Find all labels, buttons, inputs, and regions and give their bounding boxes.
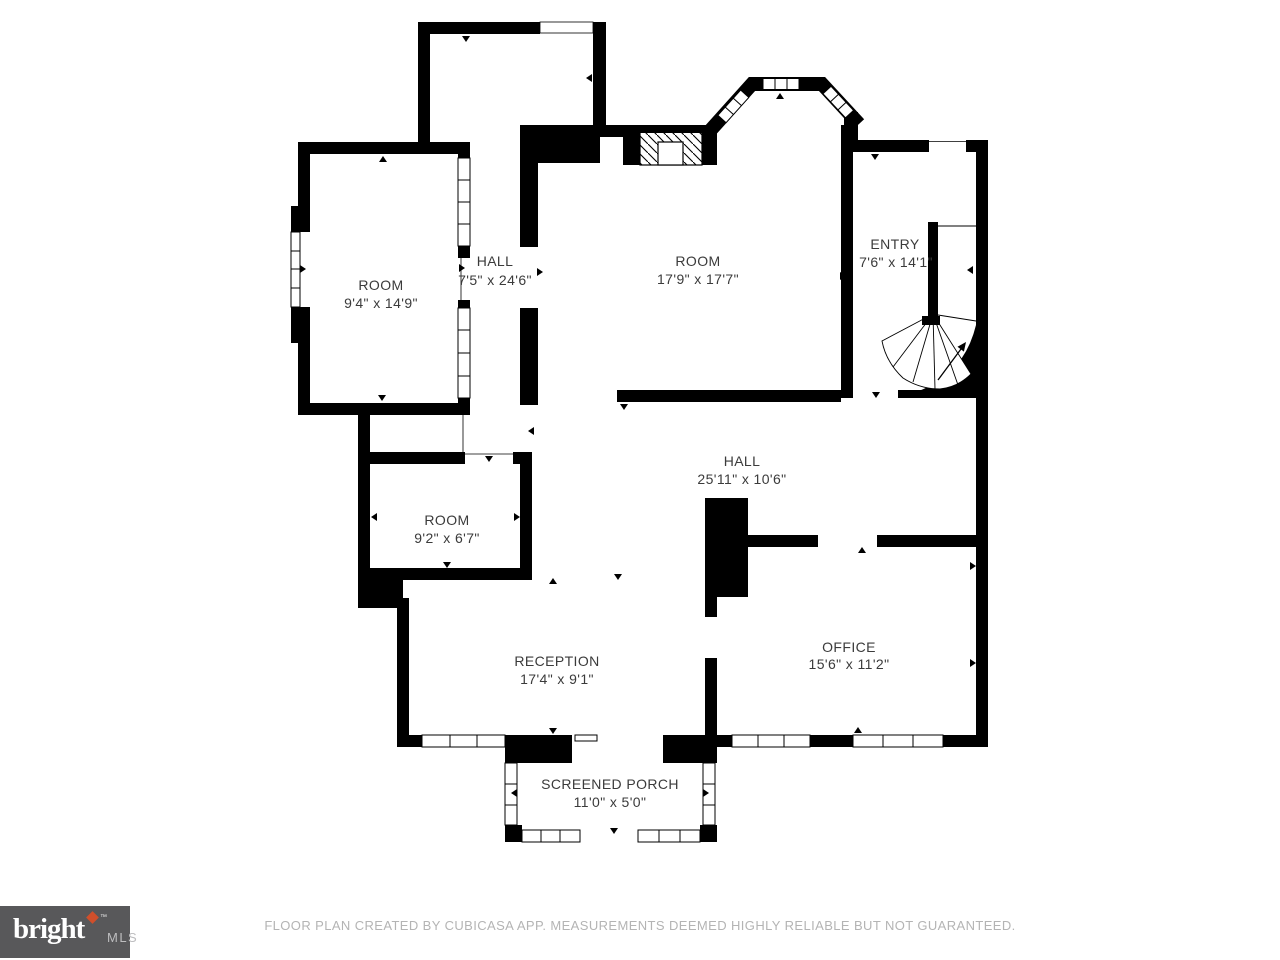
svg-text:ROOM: ROOM: [675, 253, 720, 269]
disclaimer-text: FLOOR PLAN CREATED BY CUBICASA APP. MEAS…: [0, 918, 1280, 933]
svg-text:RECEPTION: RECEPTION: [514, 653, 599, 669]
svg-text:HALL: HALL: [477, 253, 514, 269]
svg-text:9'2" x 6'7": 9'2" x 6'7": [414, 530, 480, 546]
logo-spark-icon: [86, 911, 99, 924]
logo-brand-text: bright: [13, 915, 84, 944]
room-label-screened-porch: SCREENED PORCH 11'0" x 5'0": [541, 776, 679, 810]
svg-text:OFFICE: OFFICE: [822, 639, 876, 655]
room-label-hall-main: HALL 25'11" x 10'6": [697, 453, 786, 487]
svg-text:17'9" x 17'7": 17'9" x 17'7": [657, 271, 739, 287]
svg-text:25'11" x 10'6": 25'11" x 10'6": [697, 471, 786, 487]
floor-plan-svg: ROOM 9'4" x 14'9" HALL 7'5" x 24'6" ROOM…: [0, 0, 1280, 960]
room-label-reception: RECEPTION 17'4" x 9'1": [514, 653, 599, 687]
room-label-hall-vertical: HALL 7'5" x 24'6": [458, 253, 532, 288]
svg-text:9'4" x 14'9": 9'4" x 14'9": [344, 295, 418, 311]
room-label-room-top-left: ROOM 9'4" x 14'9": [344, 277, 418, 311]
room-label-room-main: ROOM 17'9" x 17'7": [657, 253, 739, 287]
svg-text:ROOM: ROOM: [358, 277, 403, 293]
logo-trademark: ™: [100, 914, 107, 921]
svg-text:11'0" x 5'0": 11'0" x 5'0": [574, 794, 647, 810]
svg-text:SCREENED PORCH: SCREENED PORCH: [541, 776, 679, 792]
room-label-entry: ENTRY 7'6" x 14'1": [859, 236, 933, 270]
logo-suffix-text: MLS: [107, 930, 138, 945]
svg-text:ENTRY: ENTRY: [870, 236, 919, 252]
svg-text:ROOM: ROOM: [424, 512, 469, 528]
svg-text:17'4" x 9'1": 17'4" x 9'1": [520, 671, 594, 687]
floor-plan-page: ROOM 9'4" x 14'9" HALL 7'5" x 24'6" ROOM…: [0, 0, 1280, 960]
svg-text:7'5" x 24'6": 7'5" x 24'6": [458, 272, 532, 288]
room-label-room-small: ROOM 9'2" x 6'7": [414, 512, 480, 546]
brightmls-logo: bright ™ MLS: [0, 906, 130, 958]
room-label-office: OFFICE 15'6" x 11'2": [809, 639, 890, 672]
svg-text:HALL: HALL: [724, 453, 761, 469]
fireplace: [623, 125, 717, 165]
svg-text:7'6" x 14'1": 7'6" x 14'1": [859, 254, 933, 270]
svg-text:15'6" x 11'2": 15'6" x 11'2": [809, 656, 890, 672]
